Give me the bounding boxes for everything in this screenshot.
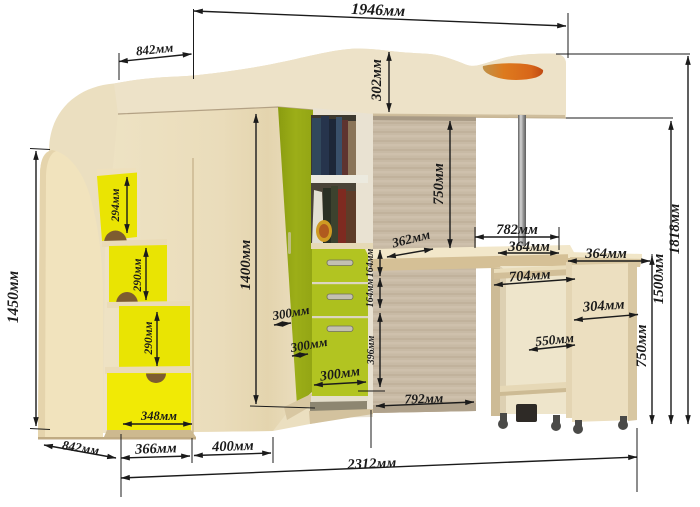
svg-text:364мм: 364мм (584, 246, 627, 262)
svg-text:364мм: 364мм (507, 239, 550, 255)
svg-text:302мм: 302мм (369, 59, 385, 102)
svg-text:396мм: 396мм (366, 336, 377, 366)
svg-text:366мм: 366мм (134, 440, 177, 457)
svg-text:294мм: 294мм (110, 188, 122, 222)
svg-text:290мм: 290мм (143, 321, 155, 355)
svg-text:704мм: 704мм (508, 267, 551, 286)
svg-text:1450мм: 1450мм (5, 271, 22, 324)
svg-text:164мм: 164мм (365, 279, 376, 308)
svg-text:1400мм: 1400мм (238, 240, 254, 291)
svg-text:304мм: 304мм (581, 297, 625, 316)
svg-text:1818мм: 1818мм (667, 204, 683, 255)
svg-text:164мм: 164мм (365, 249, 376, 278)
svg-text:400мм: 400мм (211, 438, 254, 455)
svg-text:2312мм: 2312мм (346, 455, 397, 473)
svg-text:1500мм: 1500мм (651, 254, 667, 305)
svg-text:792мм: 792мм (404, 390, 443, 406)
svg-text:1946мм: 1946мм (351, 1, 406, 20)
svg-text:290мм: 290мм (132, 258, 144, 292)
svg-text:348мм: 348мм (140, 409, 177, 423)
svg-text:750мм: 750мм (431, 163, 447, 205)
svg-text:782мм: 782мм (496, 222, 538, 238)
svg-text:750мм: 750мм (634, 324, 650, 367)
